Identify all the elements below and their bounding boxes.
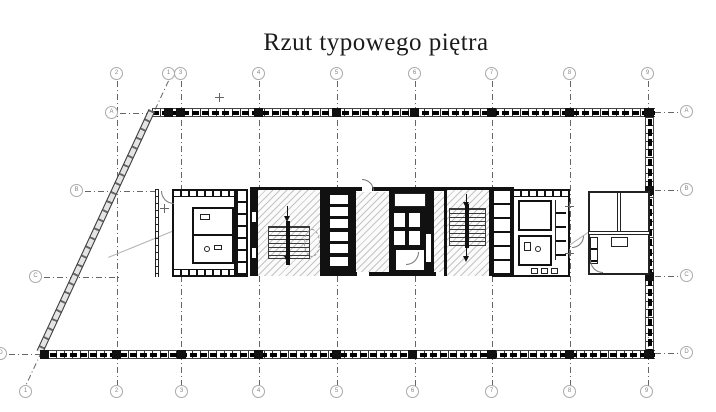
grid-stub-row-d-left <box>9 354 42 355</box>
shaft-slot <box>426 234 431 262</box>
column <box>40 350 49 359</box>
grid-bubble-bottom-3: 3 <box>175 385 188 398</box>
grid-bubble-right-c: C <box>680 269 693 282</box>
door-swing-arc <box>572 236 584 248</box>
column <box>565 350 574 359</box>
elevator-car <box>330 232 348 241</box>
column <box>565 108 574 117</box>
elevator-lobby <box>356 192 389 272</box>
door-opening <box>252 212 256 222</box>
grid-bubble-left-c: C <box>29 270 42 283</box>
elevator-car <box>409 231 420 245</box>
column <box>177 350 186 359</box>
column <box>176 108 185 117</box>
service-cell <box>394 193 426 207</box>
elevator-car <box>394 231 405 245</box>
stair-direction-arrow <box>287 240 288 260</box>
column <box>487 350 496 359</box>
grid-bubble-top-5: 5 <box>330 67 343 80</box>
urinal-fixture <box>531 268 538 274</box>
shaft-column <box>236 189 248 277</box>
locker-strip <box>174 191 234 197</box>
partition-wall <box>617 193 621 231</box>
column <box>164 108 173 117</box>
elevator-car <box>330 207 348 216</box>
grid-bubble-top-9: 9 <box>641 67 654 80</box>
column <box>254 350 263 359</box>
elevator-car <box>330 219 348 228</box>
elevator-car <box>394 213 405 227</box>
stair-direction-arrow <box>287 206 288 220</box>
survey-cross <box>160 204 169 213</box>
grid-bubble-top-7: 7 <box>485 67 498 80</box>
wc-stall-column <box>492 189 512 277</box>
grid-bubble-bottom-9: 9 <box>640 385 653 398</box>
elevator-car <box>330 195 348 204</box>
grid-bubble-bottom-1: 1 <box>19 385 32 398</box>
elevator-car <box>409 213 420 227</box>
toilet-fixture <box>204 246 210 252</box>
elevator-car <box>330 257 348 266</box>
grid-bubble-bottom-7: 7 <box>485 385 498 398</box>
column <box>644 350 654 359</box>
facade-west-slanted <box>37 109 155 353</box>
drawing-title: Rzut typowego piętra <box>18 29 716 57</box>
survey-cross <box>215 93 224 102</box>
grid-bubble-top-4: 4 <box>252 67 265 80</box>
grid-stub-row-c-left <box>44 277 120 278</box>
column <box>332 108 341 117</box>
grid-bubble-right-d: D <box>680 346 693 359</box>
grid-bubble-bottom-2: 2 <box>110 385 123 398</box>
grid-bubble-right-b: B <box>680 183 693 196</box>
grid-bubble-top-8: 8 <box>563 67 576 80</box>
urinal-fixture <box>541 268 548 274</box>
grid-bubble-left-a: A <box>105 106 118 119</box>
grid-bubble-left-d: D <box>0 347 7 360</box>
grid-stub-row-b-left <box>85 191 155 192</box>
stair-handrail-arc <box>304 229 320 257</box>
grid-bubble-left-b: B <box>70 184 83 197</box>
grid-stub-row-a-right <box>655 112 680 113</box>
grid-line-col-8 <box>570 81 571 386</box>
grid-bubble-bottom-8: 8 <box>563 385 576 398</box>
sink-fixture <box>535 246 541 252</box>
floor-plan-drawing: Rzut typowego piętra <box>0 0 716 412</box>
partition-wall <box>589 231 649 235</box>
survey-cross <box>565 202 574 211</box>
grid-bubble-bottom-4: 4 <box>252 385 265 398</box>
stair-direction-arrow <box>466 242 467 260</box>
grid-line-col-2 <box>117 81 118 386</box>
core-glazed-partition <box>155 189 159 277</box>
column <box>254 108 263 117</box>
table <box>611 237 628 247</box>
locker-strip <box>174 269 234 275</box>
column <box>332 350 341 359</box>
sink-fixture <box>214 245 222 250</box>
facade-south <box>40 350 655 359</box>
grid-stub-row-d-right <box>655 353 680 354</box>
survey-cross <box>565 249 574 258</box>
column <box>644 108 654 117</box>
column <box>112 350 121 359</box>
facade-north <box>152 108 655 117</box>
column <box>410 108 419 117</box>
elevator-car <box>330 244 348 253</box>
toilet-room-upper <box>518 200 552 231</box>
stair-wall <box>250 188 258 276</box>
grid-stub-row-c-right <box>655 276 680 277</box>
door-opening <box>252 248 256 258</box>
grid-bubble-top-6: 6 <box>408 67 421 80</box>
toilet-fixture <box>524 242 531 251</box>
column <box>408 350 417 359</box>
column <box>487 108 496 117</box>
grid-bubble-top-2: 2 <box>110 67 123 80</box>
grid-stub-row-b-right <box>655 190 680 191</box>
locker-strip <box>514 191 568 197</box>
core-corridor <box>434 192 444 272</box>
partition-wall <box>193 234 233 236</box>
sink-fixture <box>200 214 210 220</box>
door-swing-arc <box>161 191 174 204</box>
stair-direction-arrow <box>466 194 467 206</box>
urinal-fixture <box>551 268 558 274</box>
grid-bubble-bottom-5: 5 <box>330 385 343 398</box>
door-swing-arc <box>362 179 374 191</box>
grid-bubble-right-a: A <box>680 105 693 118</box>
grid-bubble-bottom-6: 6 <box>406 385 419 398</box>
grid-bubble-top-3: 3 <box>174 67 187 80</box>
